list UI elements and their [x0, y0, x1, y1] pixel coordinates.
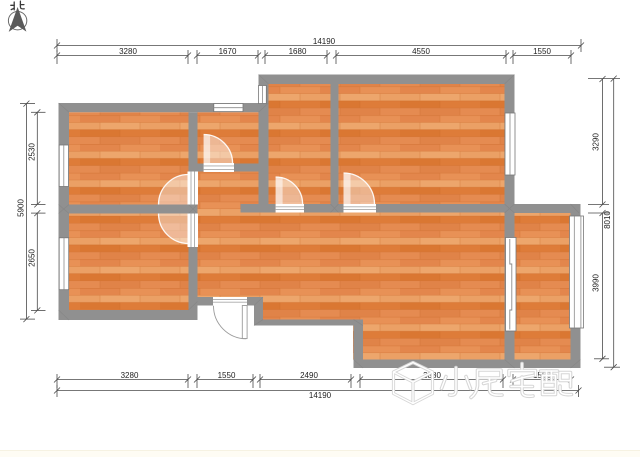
svg-text:3280: 3280: [119, 47, 137, 56]
svg-text:1550: 1550: [533, 47, 551, 56]
svg-text:14190: 14190: [309, 391, 332, 400]
svg-text:4550: 4550: [412, 47, 430, 56]
svg-text:14190: 14190: [313, 37, 336, 46]
svg-text:3990: 3990: [592, 274, 601, 292]
svg-text:1550: 1550: [218, 371, 236, 380]
svg-text:1670: 1670: [219, 47, 237, 56]
svg-text:3280: 3280: [121, 371, 139, 380]
svg-text:3290: 3290: [592, 133, 601, 151]
svg-text:2530: 2530: [28, 143, 37, 161]
svg-text:5900: 5900: [17, 199, 26, 217]
svg-text:1680: 1680: [289, 47, 307, 56]
svg-text:2650: 2650: [28, 249, 37, 267]
svg-text:2490: 2490: [300, 371, 318, 380]
